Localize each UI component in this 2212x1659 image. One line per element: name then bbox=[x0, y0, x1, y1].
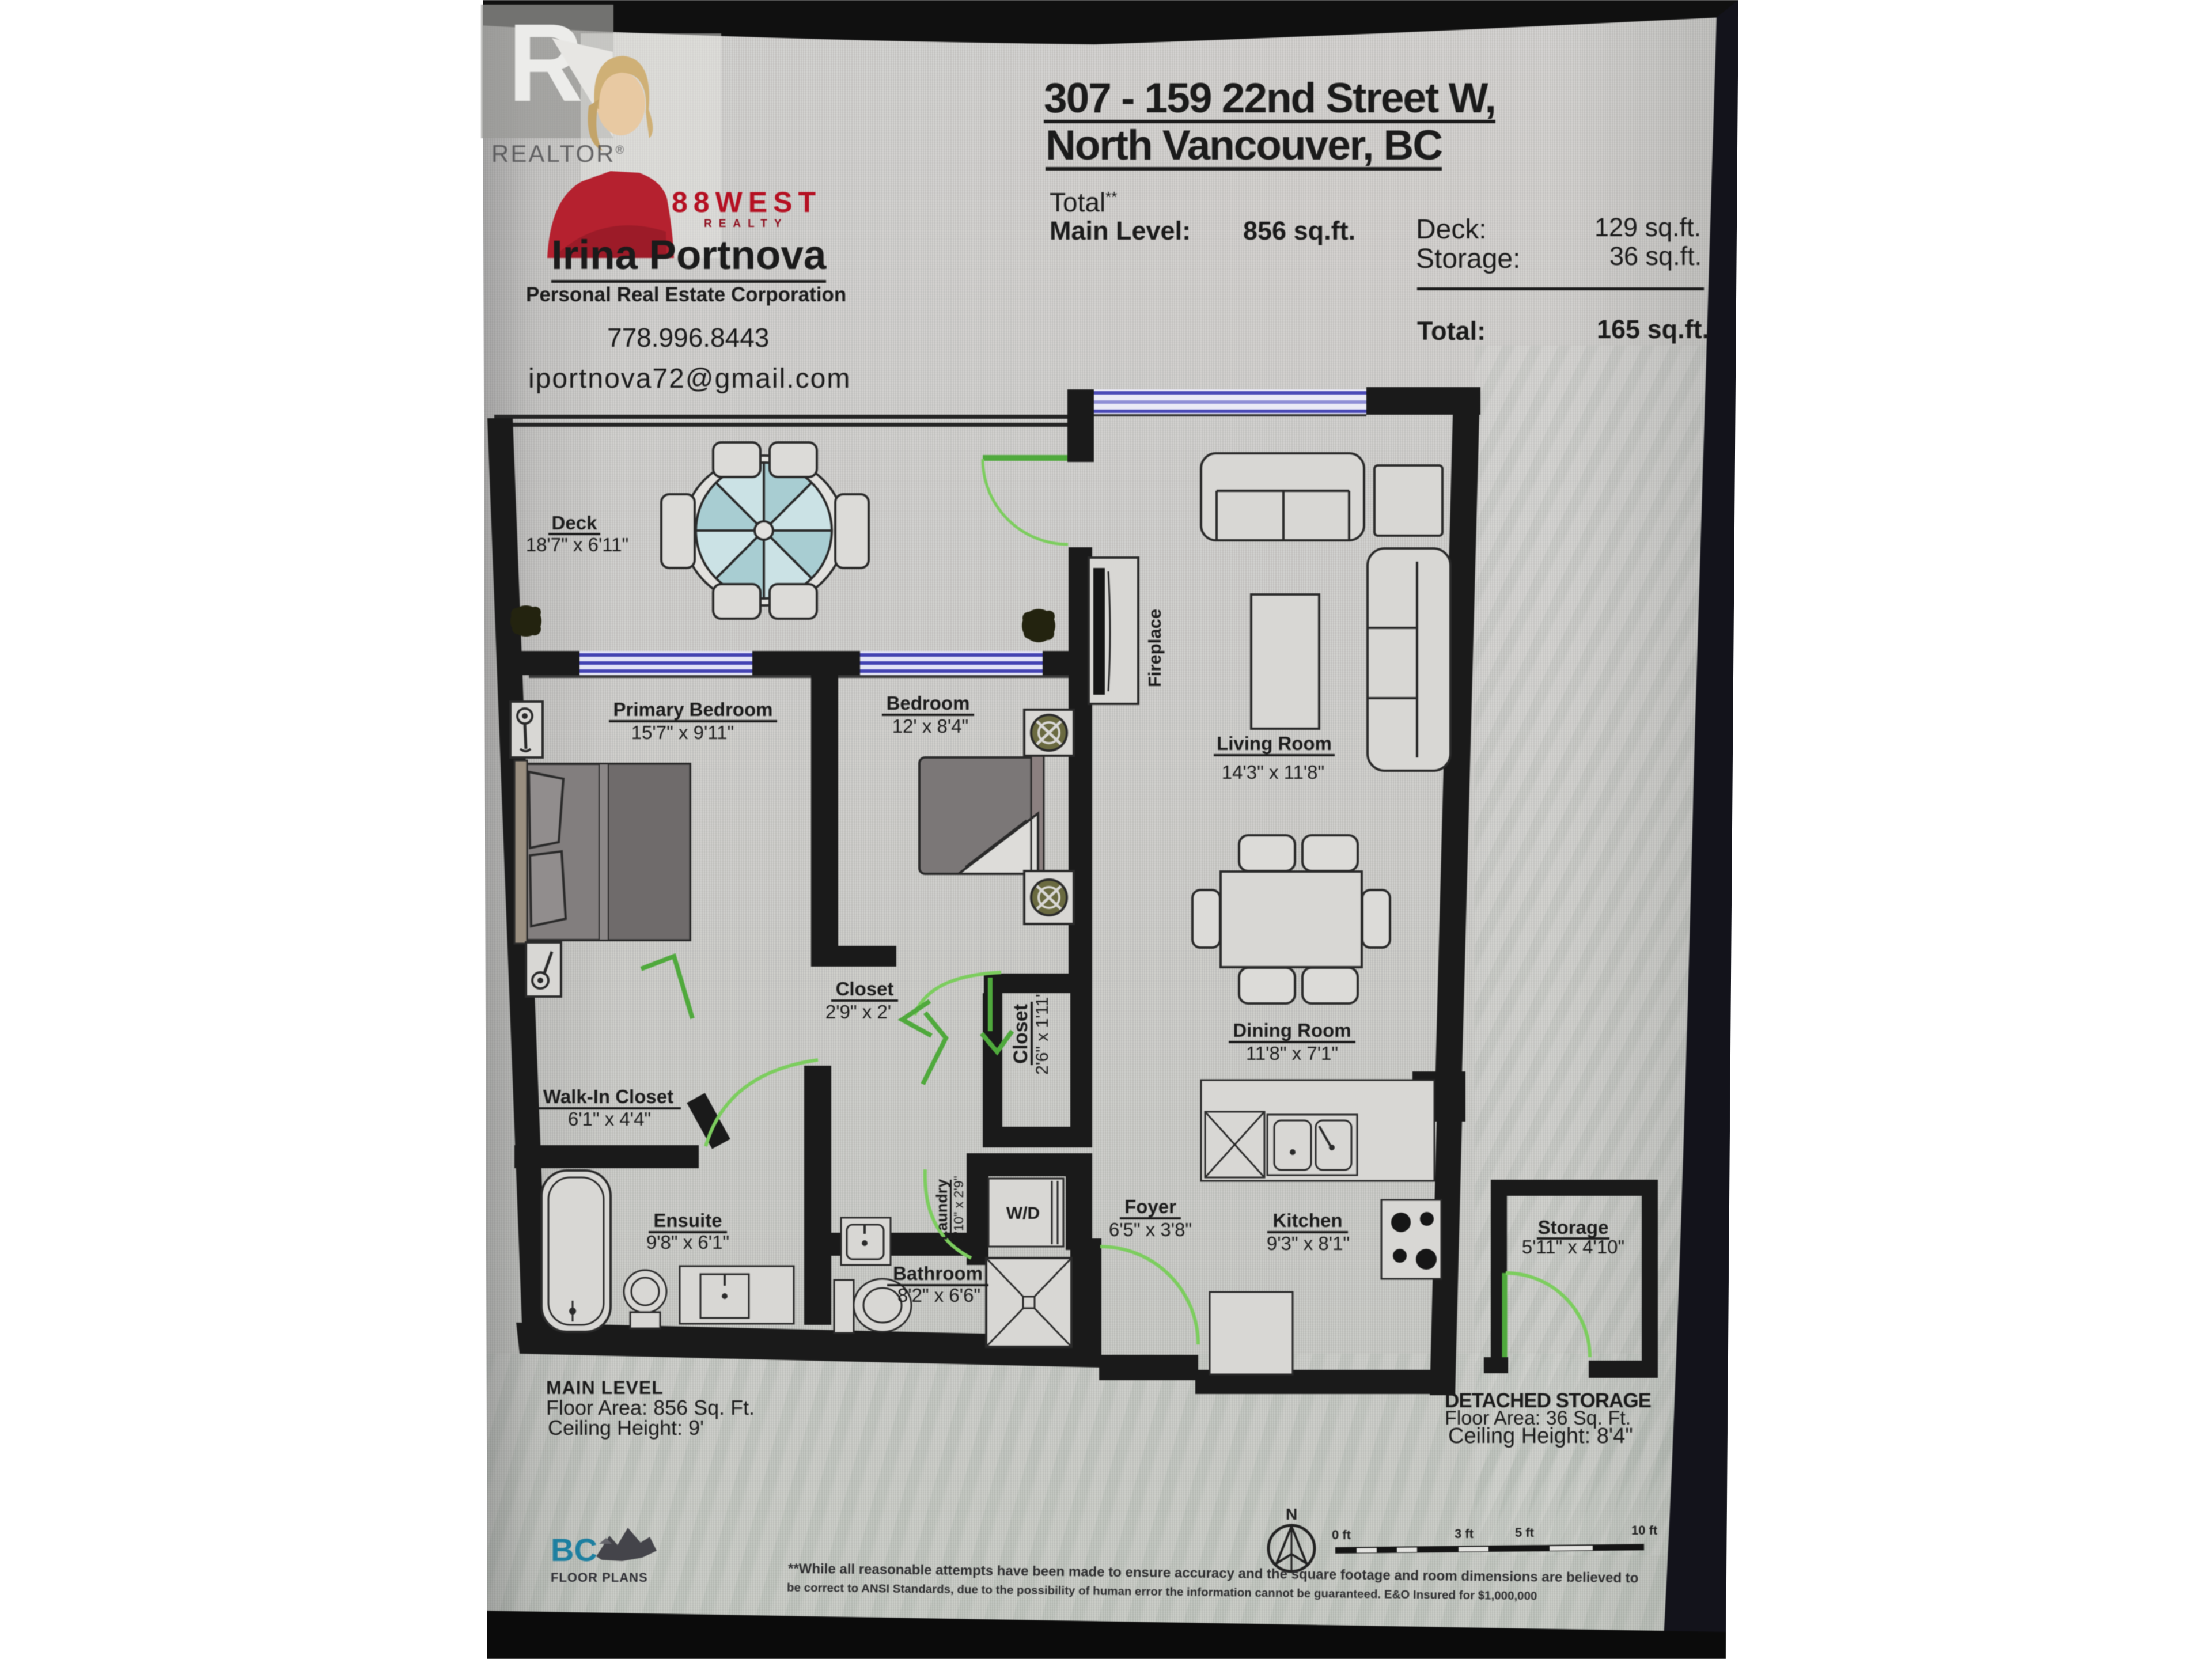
svg-text:11'8" x 7'1": 11'8" x 7'1" bbox=[1246, 1043, 1338, 1064]
svg-text:Laundry: Laundry bbox=[933, 1179, 950, 1241]
svg-text:5 ft: 5 ft bbox=[1515, 1525, 1535, 1540]
svg-text:2'6" x 1'11": 2'6" x 1'11" bbox=[1033, 991, 1052, 1075]
svg-text:Closet: Closet bbox=[1010, 1004, 1032, 1064]
svg-text:3 ft: 3 ft bbox=[1455, 1527, 1474, 1541]
svg-text:Living Room: Living Room bbox=[1217, 733, 1332, 754]
svg-text:6'1" x 4'4": 6'1" x 4'4" bbox=[568, 1108, 651, 1130]
svg-text:Dining Room: Dining Room bbox=[1233, 1020, 1351, 1041]
svg-text:10 ft: 10 ft bbox=[1631, 1523, 1658, 1537]
svg-text:W/D: W/D bbox=[1006, 1204, 1040, 1223]
svg-text:15'7" x 9'11": 15'7" x 9'11" bbox=[631, 722, 734, 743]
svg-text:9'8" x 6'1": 9'8" x 6'1" bbox=[646, 1232, 729, 1253]
svg-text:2'9" x 2': 2'9" x 2' bbox=[825, 1001, 891, 1022]
svg-text:14'3" x 11'8": 14'3" x 11'8" bbox=[1222, 762, 1325, 783]
svg-text:Deck: Deck bbox=[552, 512, 598, 533]
svg-text:12' x 8'4": 12' x 8'4" bbox=[892, 715, 969, 737]
svg-text:Primary Bedroom: Primary Bedroom bbox=[613, 699, 773, 720]
svg-text:BC: BC bbox=[551, 1532, 597, 1568]
svg-text:N: N bbox=[1286, 1505, 1297, 1523]
svg-text:5'11" x 4'10": 5'11" x 4'10" bbox=[1522, 1236, 1625, 1257]
svg-text:9'3" x 8'1": 9'3" x 8'1" bbox=[1267, 1233, 1350, 1254]
svg-text:Storage: Storage bbox=[1538, 1217, 1609, 1238]
svg-text:Ensuite: Ensuite bbox=[653, 1210, 722, 1231]
svg-text:8'2" x 6'6": 8'2" x 6'6" bbox=[897, 1285, 980, 1306]
svg-text:Bedroom: Bedroom bbox=[887, 692, 970, 714]
svg-text:FLOOR PLANS: FLOOR PLANS bbox=[551, 1570, 648, 1585]
svg-text:6'5" x 3'8": 6'5" x 3'8" bbox=[1109, 1219, 1192, 1240]
svg-text:Fireplace: Fireplace bbox=[1145, 609, 1165, 687]
svg-text:Bathroom: Bathroom bbox=[893, 1263, 983, 1284]
svg-text:Foyer: Foyer bbox=[1124, 1196, 1176, 1217]
svg-text:Closet: Closet bbox=[836, 978, 894, 999]
svg-text:2'10" x 2'9": 2'10" x 2'9" bbox=[951, 1176, 966, 1241]
svg-text:0 ft: 0 ft bbox=[1332, 1528, 1351, 1542]
svg-text:Walk-In Closet: Walk-In Closet bbox=[543, 1086, 673, 1107]
svg-text:18'7" x 6'11": 18'7" x 6'11" bbox=[526, 534, 629, 555]
svg-text:Kitchen: Kitchen bbox=[1272, 1210, 1342, 1231]
